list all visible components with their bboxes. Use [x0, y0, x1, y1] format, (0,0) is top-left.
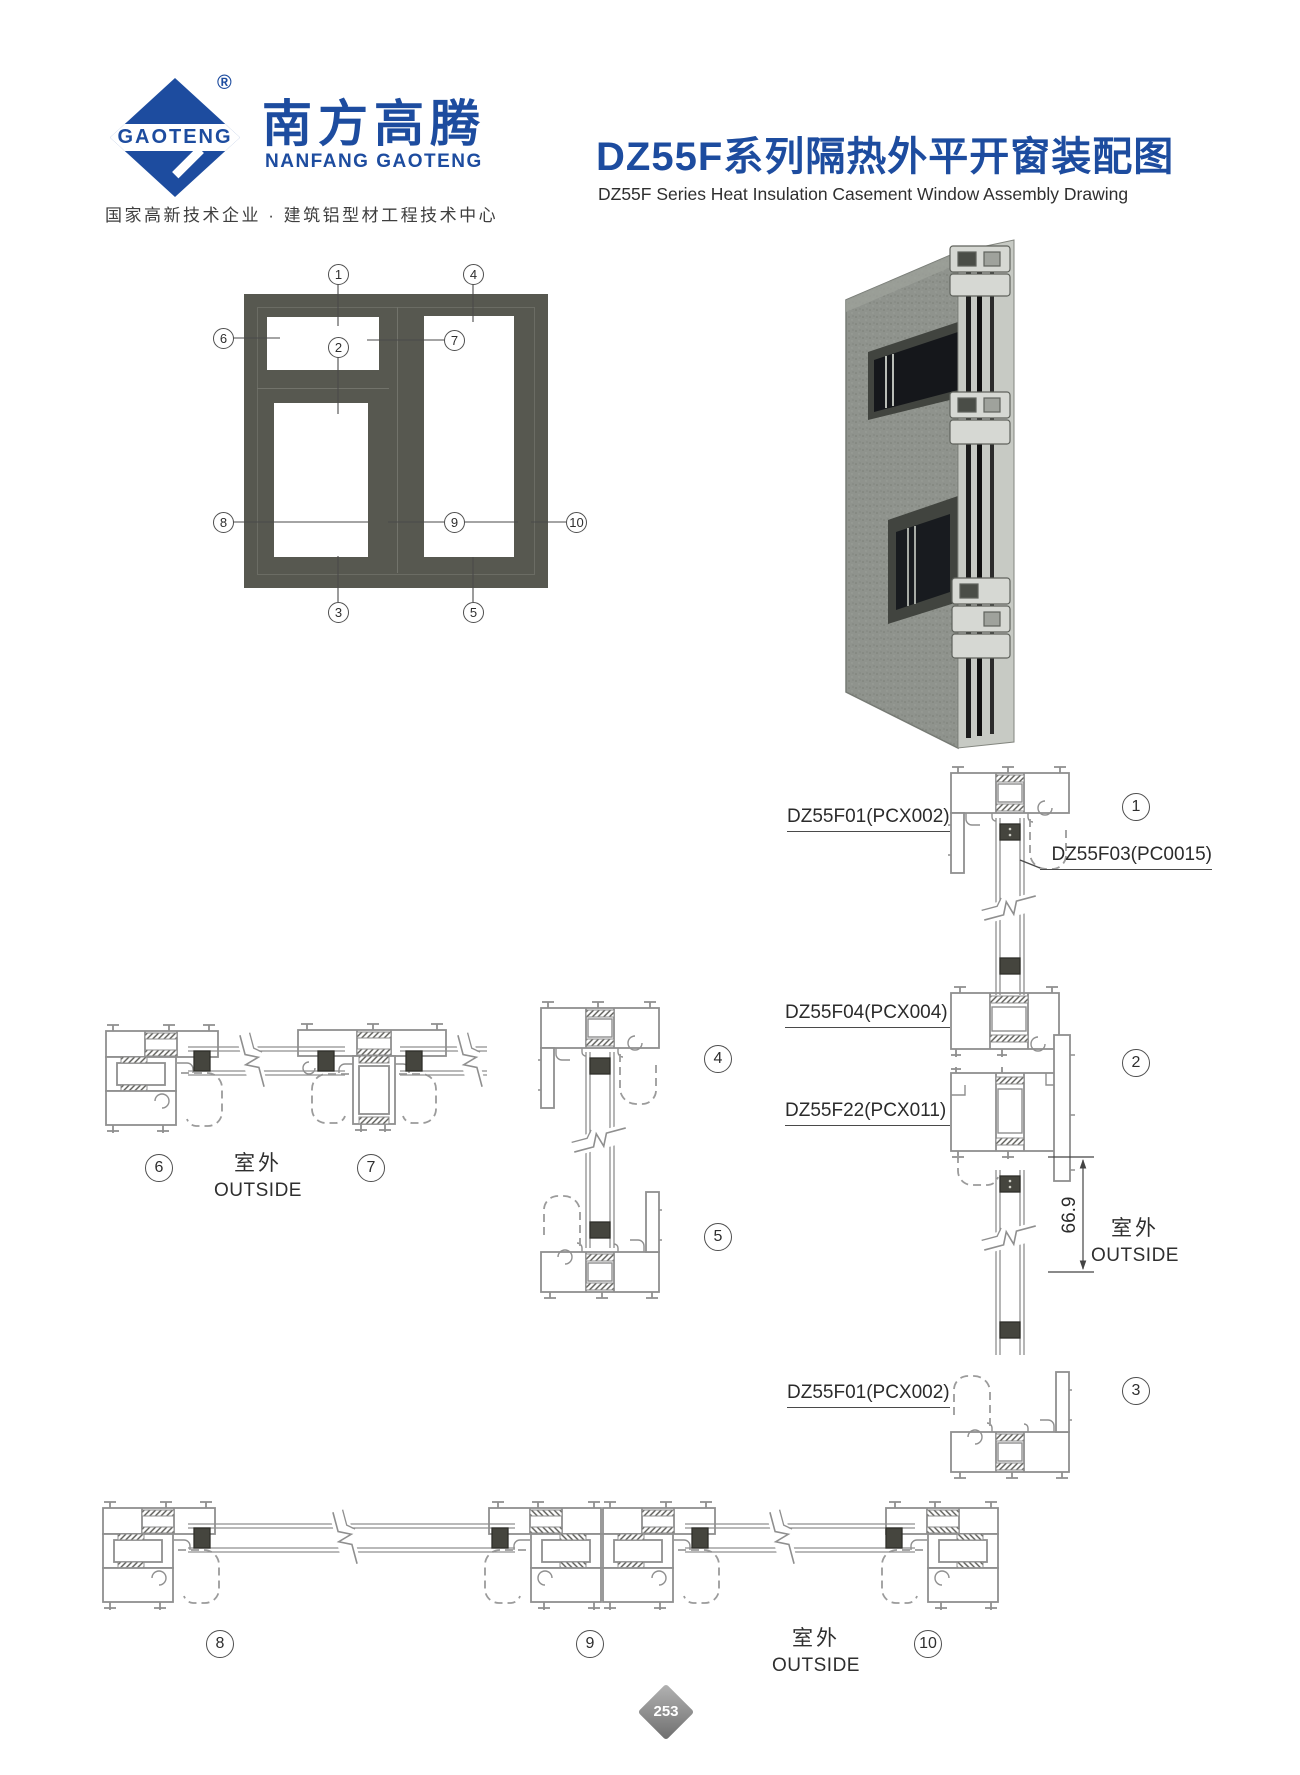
callout-7: 7 [444, 330, 465, 351]
outside-en: OUTSIDE [746, 1655, 886, 1677]
outside-annotation-right: 室外 OUTSIDE [1065, 1212, 1205, 1267]
section-callout-10: 10 [914, 1630, 942, 1658]
gaoteng-logo-icon: GAOTENG [110, 78, 240, 197]
callout-3: 3 [328, 602, 349, 623]
section-callout-9: 9 [576, 1630, 604, 1658]
outside-cn: 室外 [188, 1147, 328, 1177]
outside-cn: 室外 [1065, 1212, 1205, 1242]
outside-en: OUTSIDE [1065, 1245, 1205, 1267]
outside-cn: 室外 [746, 1622, 886, 1652]
page-number-badge: 253 [638, 1684, 695, 1741]
callout-6: 6 [213, 328, 234, 349]
section-callout-5: 5 [704, 1223, 732, 1251]
label-bottom-frame-profile: DZ55F01(PCX002) [787, 1382, 950, 1408]
outside-annotation-left: 室外 OUTSIDE [188, 1147, 328, 1202]
dimension-66-9: 66.9 [1059, 1191, 1081, 1239]
callout-8: 8 [213, 512, 234, 533]
callout-10: 10 [566, 512, 587, 533]
callout-4: 4 [463, 264, 484, 285]
section-callout-8: 8 [206, 1630, 234, 1658]
logo-tail-shape [172, 147, 204, 179]
callout-1: 1 [328, 264, 349, 285]
section-callout-2: 2 [1122, 1049, 1150, 1077]
callout-5: 5 [463, 602, 484, 623]
callout-2: 2 [328, 337, 349, 358]
section-callout-4: 4 [704, 1045, 732, 1073]
outside-en: OUTSIDE [188, 1180, 328, 1202]
section-callout-1: 1 [1122, 793, 1150, 821]
section-callout-3: 3 [1122, 1377, 1150, 1405]
section-callout-6: 6 [145, 1154, 173, 1182]
brand-tagline: 国家高新技术企业 · 建筑铝型材工程技术中心 [105, 201, 498, 226]
page-title-en: DZ55F Series Heat Insulation Casement Wi… [598, 184, 1128, 205]
label-sash-profile: DZ55F03(PC0015) [1040, 844, 1212, 870]
brand-name-cn: 南方高腾 [262, 84, 486, 156]
outside-annotation-bottom: 室外 OUTSIDE [746, 1622, 886, 1677]
page-title-cn: DZ55F系列隔热外平开窗装配图 [596, 124, 1174, 182]
label-top-frame-profile: DZ55F01(PCX002) [787, 806, 950, 832]
assembly-drawing-page: GAOTENG ® 南方高腾 NANFANG GAOTENG 国家高新技术企业 … [0, 0, 1300, 1775]
label-transom-profile: DZ55F04(PCX004) [785, 1002, 950, 1028]
logo-mark-text: GAOTENG [110, 124, 240, 151]
brand-name-en: NANFANG GAOTENG [265, 151, 483, 173]
label-transom-sash-profile: DZ55F22(PCX011) [785, 1100, 950, 1126]
registered-trademark-icon: ® [217, 72, 232, 95]
callout-9: 9 [444, 512, 465, 533]
page-number: 253 [646, 1692, 686, 1732]
section-callout-7: 7 [357, 1154, 385, 1182]
